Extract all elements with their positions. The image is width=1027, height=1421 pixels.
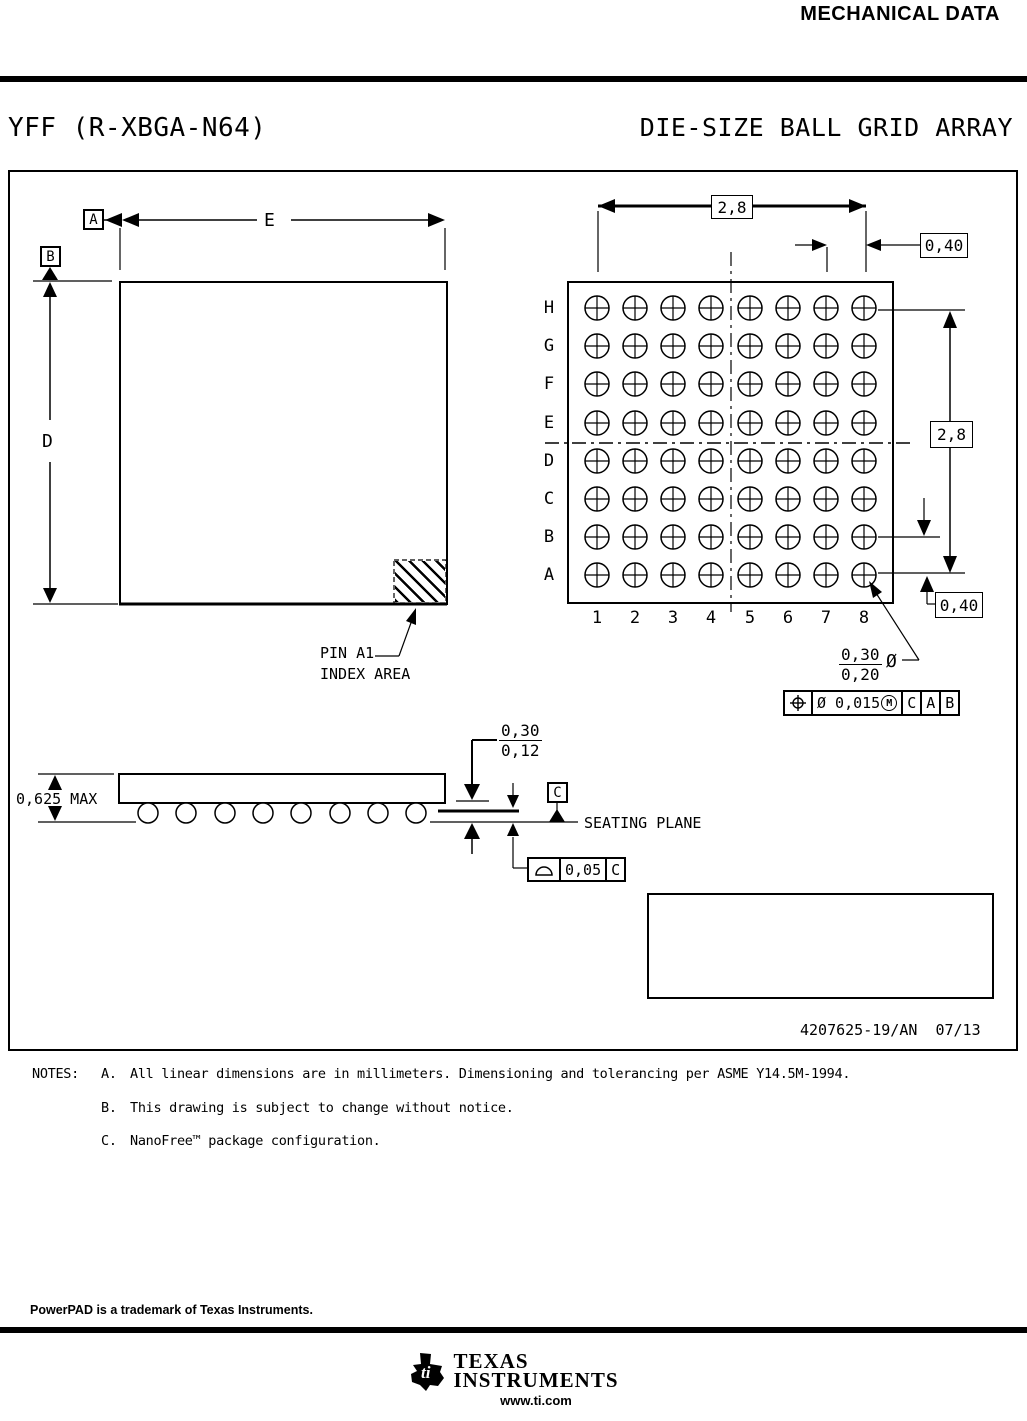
pin-a1-index-area-hatch [395, 561, 445, 602]
trademark-line: PowerPAD is a trademark of Texas Instrum… [30, 1303, 313, 1317]
position-tolerance: Ø 0,015 [817, 694, 880, 712]
dim-pitch-top-0-40: 0,40 [920, 233, 968, 258]
profile-symbol-cell [529, 859, 561, 880]
ball-dia-upper: 0,30 [839, 646, 882, 665]
pin-a1-label-2: INDEX AREA [320, 665, 410, 683]
mmc-modifier-icon: M [881, 695, 897, 711]
revision-date: 07/13 [935, 1021, 980, 1039]
datum-a-flag: A [83, 209, 104, 230]
dim-top-2-8: 2,8 [711, 195, 753, 219]
package-type: DIE-SIZE BALL GRID ARRAY [640, 113, 1013, 142]
standoff-tolerance: 0,30 0,12 [499, 722, 542, 759]
drawing-number-line: 4207625-19/AN 07/13 [800, 1021, 981, 1039]
flatness-value: 0,05 [561, 859, 607, 880]
package-code: YFF (R-XBGA-N64) [8, 113, 266, 143]
pin-a1-label-1: PIN A1 [320, 644, 374, 662]
fcf-datum-a: A [922, 692, 941, 714]
standoff-upper: 0,30 [499, 722, 542, 741]
doc-title: MECHANICAL DATA [800, 3, 1000, 26]
height-max-label: 0,625 MAX [16, 790, 97, 808]
dim-right-2-8: 2,8 [930, 421, 973, 448]
dim-pitch-right-0-40: 0,40 [935, 592, 983, 618]
title-block-box [647, 893, 994, 999]
datum-c-flag: C [547, 782, 568, 803]
seating-plane-label: SEATING PLANE [584, 814, 701, 832]
drawing-number: 4207625-19/AN [800, 1021, 917, 1039]
ball-diameter-tolerance: 0,30 0,20 [839, 646, 882, 683]
profile-surface-symbol-icon [533, 863, 555, 877]
position-symbol-cell [785, 692, 813, 714]
dim-e-label: E [264, 210, 275, 231]
fcf-datum-c: C [903, 692, 922, 714]
dim-d-label: D [42, 431, 53, 452]
diameter-symbol: Ø [886, 651, 897, 672]
flatness-feature-control-frame: 0,05 C [527, 857, 626, 882]
datum-b-flag: B [40, 246, 61, 267]
ball-dia-lower: 0,20 [839, 665, 882, 683]
standoff-lower: 0,12 [499, 741, 542, 759]
position-feature-control-frame: Ø 0,015 M C A B [783, 690, 960, 716]
flatness-datum: C [607, 859, 624, 880]
mechanical-data-page: MECHANICAL DATA YFF (R-XBGA-N64) DIE-SIZ… [0, 0, 1027, 1421]
position-tolerance-cell: Ø 0,015 M [813, 692, 903, 714]
position-symbol-icon [789, 694, 807, 712]
fcf-datum-b: B [941, 692, 958, 714]
